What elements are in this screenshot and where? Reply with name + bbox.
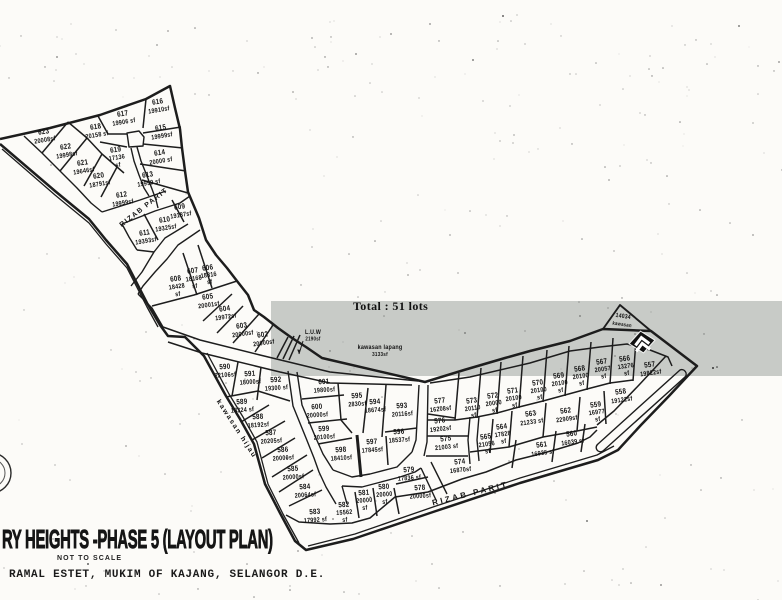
svg-text:558: 558 <box>615 388 627 397</box>
svg-text:574: 574 <box>454 458 466 467</box>
svg-text:L.U.W: L.U.W <box>305 330 321 337</box>
svg-text:582: 582 <box>338 501 350 509</box>
svg-text:604: 604 <box>219 305 231 314</box>
svg-text:20000: 20000 <box>376 491 393 499</box>
svg-text:580: 580 <box>378 483 390 491</box>
svg-text:577: 577 <box>434 397 446 406</box>
svg-text:593: 593 <box>396 402 408 410</box>
svg-text:588: 588 <box>252 413 264 421</box>
svg-text:560: 560 <box>566 430 578 439</box>
svg-text:562: 562 <box>560 407 572 416</box>
svg-text:561: 561 <box>536 441 548 450</box>
svg-text:575: 575 <box>440 435 452 444</box>
svg-text:581: 581 <box>358 489 370 497</box>
svg-text:2190sf: 2190sf <box>305 336 320 343</box>
svg-text:603: 603 <box>236 322 248 331</box>
svg-text:kawasan lapang: kawasan lapang <box>358 345 403 352</box>
svg-text:557: 557 <box>644 361 656 370</box>
svg-text:579: 579 <box>403 466 415 474</box>
svg-text:20000: 20000 <box>356 497 373 505</box>
svg-text:602: 602 <box>257 331 269 340</box>
svg-text:597: 597 <box>366 438 378 446</box>
svg-text:578: 578 <box>414 484 426 492</box>
svg-text:576: 576 <box>434 417 446 426</box>
svg-text:605: 605 <box>202 293 214 302</box>
svg-text:3133sf: 3133sf <box>372 351 388 358</box>
svg-text:587: 587 <box>265 429 277 437</box>
svg-text:607: 607 <box>187 267 199 276</box>
svg-text:591: 591 <box>244 370 256 378</box>
svg-text:589: 589 <box>236 398 248 406</box>
svg-text:584: 584 <box>299 483 311 491</box>
svg-text:RY HEIGHTS -PHASE 5 (LAYOUT PL: RY HEIGHTS -PHASE 5 (LAYOUT PLAN) <box>2 526 273 554</box>
svg-text:NOT TO SCALE: NOT TO SCALE <box>57 555 122 562</box>
svg-text:594: 594 <box>369 398 381 406</box>
svg-text:583: 583 <box>309 508 321 516</box>
svg-text:15562: 15562 <box>336 509 353 517</box>
svg-text:586: 586 <box>277 446 289 454</box>
svg-text:600: 600 <box>311 403 323 411</box>
svg-text:Total : 51 lots: Total : 51 lots <box>353 299 428 313</box>
svg-text:RAMAL ESTET, MUKIM OF KAJANG,: RAMAL ESTET, MUKIM OF KAJANG, SELANGOR D… <box>9 569 325 581</box>
svg-text:599: 599 <box>318 425 330 433</box>
svg-text:595: 595 <box>351 392 363 400</box>
svg-text:596: 596 <box>393 428 405 436</box>
svg-text:590: 590 <box>219 363 231 371</box>
svg-text:608: 608 <box>170 275 182 284</box>
svg-text:592: 592 <box>270 376 282 384</box>
svg-text:598: 598 <box>335 446 347 454</box>
svg-text:563: 563 <box>525 410 537 419</box>
svg-text:585: 585 <box>287 465 299 473</box>
svg-text:601: 601 <box>318 378 330 386</box>
